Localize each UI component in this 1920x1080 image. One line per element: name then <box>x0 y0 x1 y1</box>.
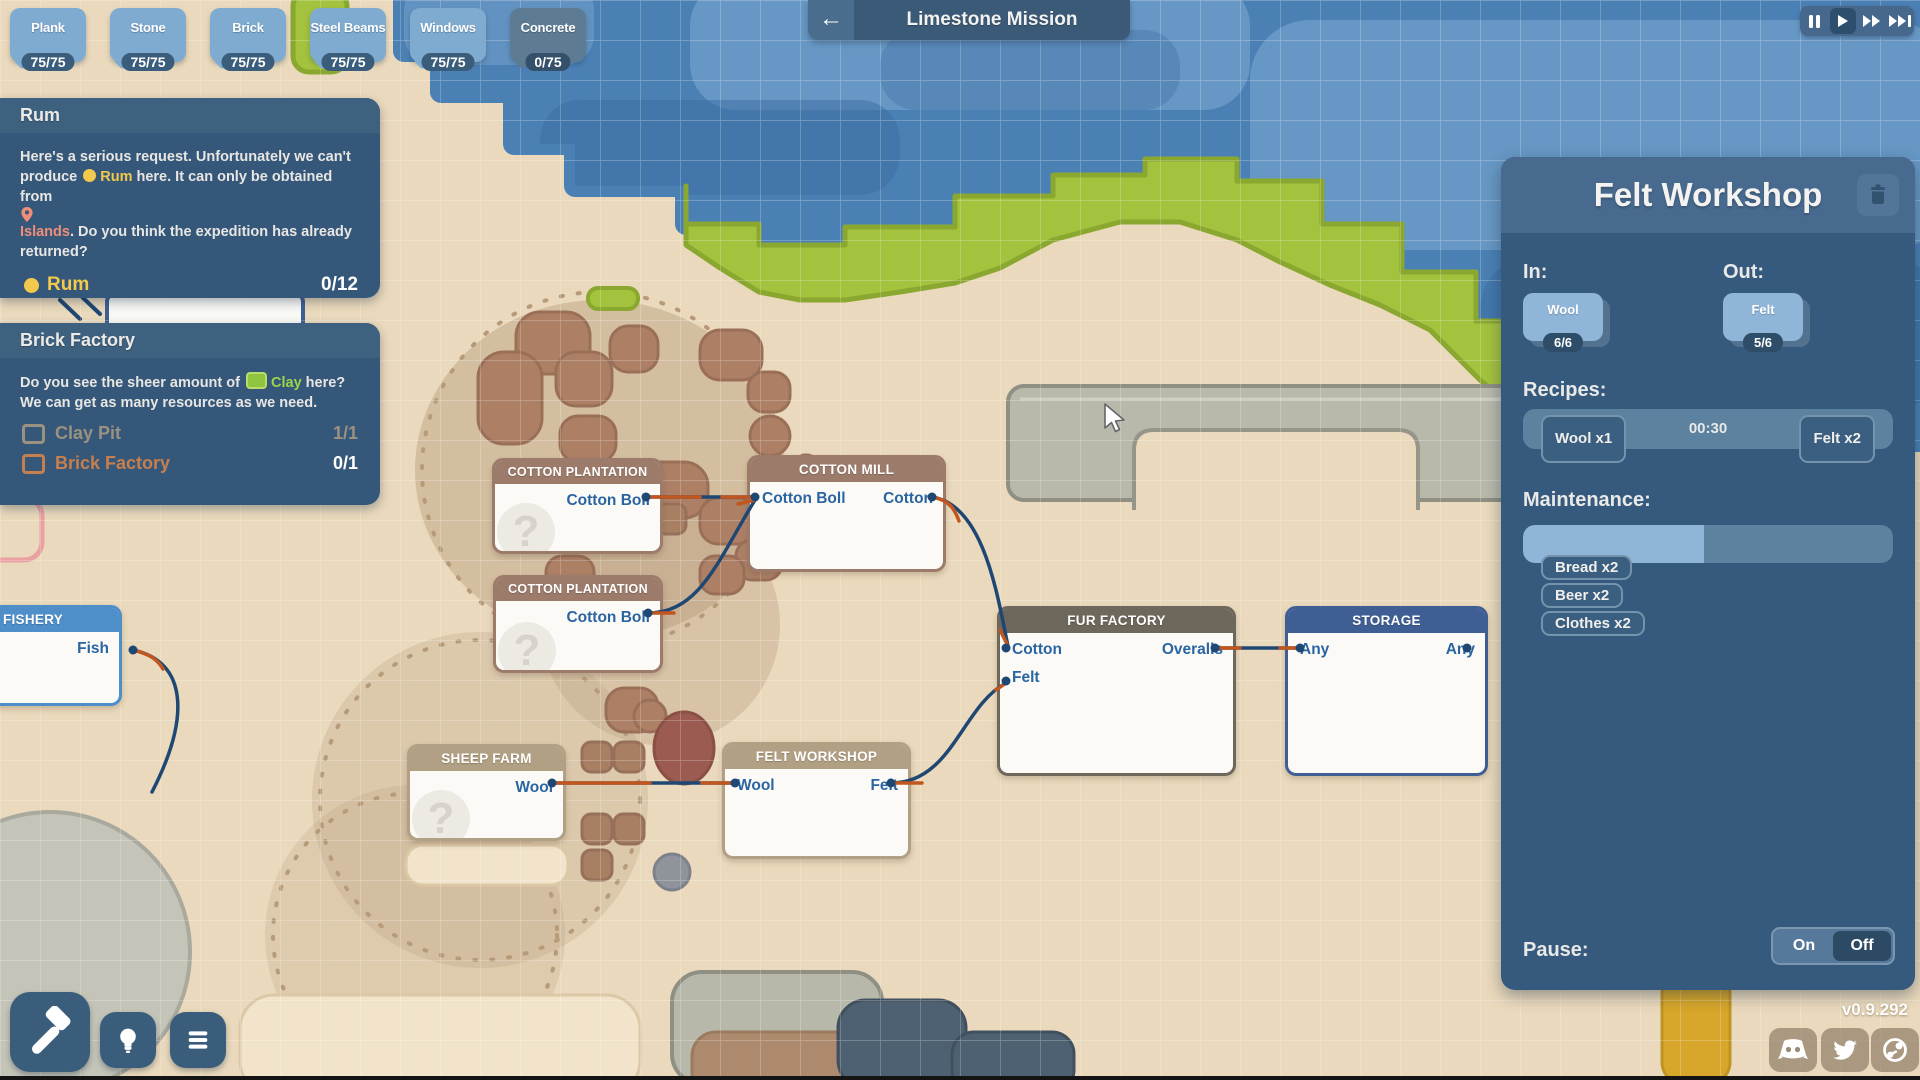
pause-off-button[interactable]: Off <box>1833 931 1891 961</box>
maintenance-item-tag: Beer x2 <box>1541 583 1623 608</box>
resource-count-badge: 0/75 <box>525 53 570 71</box>
port-in-label[interactable]: Wool <box>737 777 775 795</box>
node-felt-workshop[interactable]: FELT WORKSHOP Wool Felt <box>722 742 911 859</box>
in-label: In: <box>1523 261 1547 284</box>
node-fur-factory[interactable]: FUR FACTORY Cotton Overalls Felt <box>997 606 1236 776</box>
resource-name: Plank <box>10 20 86 35</box>
back-button[interactable]: ← <box>808 0 854 40</box>
pause-toggle: On Off <box>1771 927 1895 965</box>
location-pin-icon <box>21 207 33 222</box>
node-cotton-plantation-1[interactable]: COTTON PLANTATION Cotton Boll ? <box>492 458 663 554</box>
pause-label: Pause: <box>1523 939 1589 962</box>
node-title: STORAGE <box>1288 609 1485 633</box>
unknown-building-watermark: ? <box>497 503 555 554</box>
delete-building-button[interactable] <box>1857 174 1899 216</box>
goal-label: Rum <box>47 274 89 296</box>
building-icon <box>22 454 45 474</box>
clay-icon <box>246 372 267 389</box>
resource-name: Felt <box>1723 302 1803 317</box>
node-title: FUR FACTORY <box>1000 609 1233 633</box>
recipes-label: Recipes: <box>1523 379 1606 402</box>
menu-button[interactable] <box>170 1012 226 1068</box>
quest-card-brick-factory[interactable]: Brick Factory Do you see the sheer amoun… <box>0 323 380 505</box>
discord-icon <box>1778 1038 1808 1062</box>
maintenance-item-tag: Bread x2 <box>1541 555 1632 580</box>
recipe-input-tag: Wool x1 <box>1541 415 1626 463</box>
screen-edge <box>0 1076 1920 1080</box>
port-out-label[interactable]: Fish <box>77 640 109 658</box>
play-button[interactable] <box>1830 8 1856 34</box>
fastest-speed-button[interactable] <box>1887 8 1913 34</box>
hamburger-menu-icon <box>182 1024 214 1056</box>
mission-title: Limestone Mission <box>854 0 1130 40</box>
resource-name: Brick <box>210 20 286 35</box>
task-label: Brick Factory <box>55 453 170 474</box>
port-out-label[interactable]: Any <box>1446 641 1475 659</box>
port-out-label[interactable]: Felt <box>870 777 898 795</box>
port-in-label[interactable]: Cotton Boll <box>762 490 846 508</box>
maintenance-item-tag: Clothes x2 <box>1541 611 1645 636</box>
recipe-output-tag: Felt x2 <box>1799 415 1875 463</box>
discord-button[interactable] <box>1769 1028 1817 1072</box>
resource-count-badge: 75/75 <box>121 53 174 71</box>
mission-bar: ← Limestone Mission <box>808 0 1130 40</box>
quest-description: Do you see the sheer amount of Clay here… <box>0 358 380 413</box>
quest-goal-row: Rum 0/12 <box>0 262 380 296</box>
node-storage[interactable]: STORAGE Any Any <box>1285 606 1488 776</box>
quest-title: Rum <box>0 98 380 133</box>
quest-card-rum[interactable]: Rum Here's a serious request. Unfortunat… <box>0 98 380 298</box>
task-count: 0/1 <box>333 453 358 474</box>
game-screen: FISHERY Fish COTTON PLANTATION Cotton Bo… <box>0 0 1920 1080</box>
port-out-label[interactable]: Cotton Boll <box>566 609 650 627</box>
out-label: Out: <box>1723 261 1764 284</box>
node-title: COTTON MILL <box>750 458 943 482</box>
resource-card[interactable]: Concrete 0/75 <box>510 8 586 62</box>
pause-icon <box>1809 15 1820 28</box>
build-button[interactable] <box>10 992 90 1072</box>
port-out-label[interactable]: Wool <box>515 779 553 797</box>
twitter-icon <box>1832 1037 1858 1063</box>
arrow-left-icon: ← <box>819 5 843 32</box>
port-in-label[interactable]: Cotton <box>1012 641 1062 659</box>
hammer-icon <box>24 1006 76 1058</box>
fast-forward-button[interactable] <box>1858 8 1884 34</box>
fast-forward-icon <box>1863 15 1880 27</box>
resource-count-badge: 75/75 <box>321 53 374 71</box>
resource-card[interactable]: Steel Beams 75/75 <box>310 8 386 62</box>
resource-count-badge: 75/75 <box>221 53 274 71</box>
resource-card[interactable]: Plank 75/75 <box>10 8 86 62</box>
recipe-time: 00:30 <box>1689 420 1727 437</box>
node-sheep-farm[interactable]: SHEEP FARM Wool ? <box>407 744 566 841</box>
quest-description: Here's a serious request. Unfortunately … <box>0 133 380 262</box>
panel-header: Felt Workshop <box>1501 157 1915 233</box>
port-out-label[interactable]: Cotton <box>883 490 933 508</box>
pause-button[interactable] <box>1801 8 1827 34</box>
recipe-bar[interactable]: 00:30 Wool x1 Felt x2 <box>1523 409 1893 449</box>
resource-bar: Plank 75/75 Stone 75/75 Brick 75/75 Stee… <box>10 8 586 62</box>
goal-count: 0/12 <box>321 274 358 296</box>
quest-title: Brick Factory <box>0 323 380 358</box>
panel-title: Felt Workshop <box>1501 157 1915 233</box>
mouse-cursor <box>1102 402 1128 434</box>
resource-count: 5/6 <box>1743 333 1783 352</box>
steam-button[interactable] <box>1871 1028 1919 1072</box>
unknown-building-watermark: ? <box>412 790 470 841</box>
maintenance-label: Maintenance: <box>1523 489 1651 512</box>
node-title: COTTON PLANTATION <box>495 461 660 484</box>
node-title: FISHERY <box>0 608 119 632</box>
rum-icon <box>83 169 96 182</box>
output-resource-chip[interactable]: Felt 5/6 <box>1723 293 1803 341</box>
version-label: v0.9.292 <box>1842 1000 1908 1020</box>
hints-button[interactable] <box>100 1012 156 1068</box>
steam-icon <box>1881 1036 1909 1064</box>
node-cotton-plantation-2[interactable]: COTTON PLANTATION Cotton Boll ? <box>493 575 663 673</box>
fastest-speed-icon <box>1889 15 1911 27</box>
port-out-label[interactable]: Cotton Boll <box>566 492 650 510</box>
unknown-building-watermark: ? <box>498 622 556 673</box>
resource-name: Steel Beams <box>310 20 386 35</box>
node-cotton-mill[interactable]: COTTON MILL Cotton Boll Cotton <box>747 455 946 572</box>
resource-name: Stone <box>110 20 186 35</box>
recipe-outputs: Felt x2 <box>1799 415 1875 463</box>
resource-count-badge: 75/75 <box>421 53 474 71</box>
lightbulb-icon <box>111 1023 145 1057</box>
resource-name: Windows <box>410 20 486 35</box>
node-title: FELT WORKSHOP <box>725 745 908 769</box>
resource-count: 6/6 <box>1543 333 1583 352</box>
quest-task-row[interactable]: Brick Factory 0/1 <box>22 453 358 474</box>
resource-count-badge: 75/75 <box>21 53 74 71</box>
node-fishery[interactable]: FISHERY Fish <box>0 605 122 706</box>
port-out-label[interactable]: Overalls <box>1162 641 1223 659</box>
maintenance-items: Bread x2Beer x2Clothes x2 <box>1541 555 1645 636</box>
input-resource-chip[interactable]: Wool 6/6 <box>1523 293 1603 341</box>
node-title: SHEEP FARM <box>410 747 563 771</box>
resource-name: Wool <box>1523 302 1603 317</box>
twitter-button[interactable] <box>1821 1028 1869 1072</box>
node-title: COTTON PLANTATION <box>496 578 660 601</box>
port-in-label[interactable]: Any <box>1300 641 1329 659</box>
port-in-label[interactable]: Felt <box>1012 669 1040 687</box>
resource-card[interactable]: Brick 75/75 <box>210 8 286 62</box>
resource-card[interactable]: Windows 75/75 <box>410 8 486 62</box>
pause-on-button[interactable]: On <box>1775 931 1833 961</box>
playback-controls <box>1800 6 1914 36</box>
quest-task-row[interactable]: Clay Pit 1/1 <box>22 423 358 444</box>
resource-name: Concrete <box>510 20 586 35</box>
building-icon <box>22 424 45 444</box>
recipe-inputs: Wool x1 <box>1541 415 1626 463</box>
quest-task-list: Clay Pit 1/1 Brick Factory 0/1 <box>0 413 380 474</box>
resource-card[interactable]: Stone 75/75 <box>110 8 186 62</box>
task-count: 1/1 <box>333 423 358 444</box>
play-icon <box>1838 15 1848 27</box>
task-label: Clay Pit <box>55 423 121 444</box>
rum-icon <box>24 278 39 293</box>
building-detail-panel: Felt Workshop In: Out: Wool 6/6 Felt 5/6… <box>1501 157 1915 990</box>
trash-icon <box>1866 183 1890 207</box>
